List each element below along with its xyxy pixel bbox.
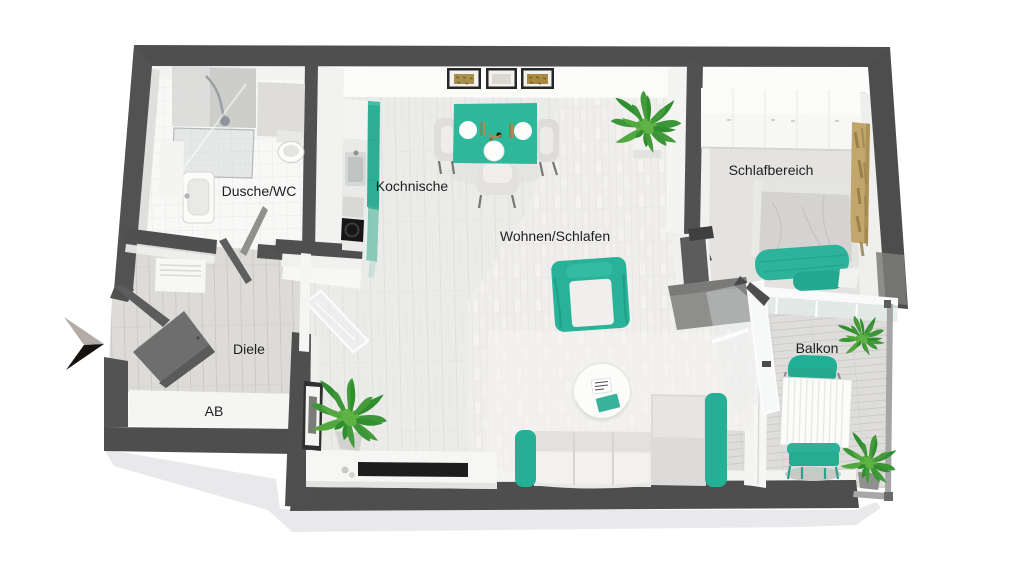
svg-text:Dusche/WC: Dusche/WC [222, 183, 297, 199]
svg-text:Wohnen/Schlafen: Wohnen/Schlafen [500, 228, 610, 244]
svg-text:Kochnische: Kochnische [376, 178, 449, 194]
svg-text:Schlafbereich: Schlafbereich [729, 162, 814, 178]
svg-text:Diele: Diele [233, 341, 265, 357]
svg-text:AB: AB [205, 403, 224, 419]
svg-text:Balkon: Balkon [796, 340, 839, 356]
